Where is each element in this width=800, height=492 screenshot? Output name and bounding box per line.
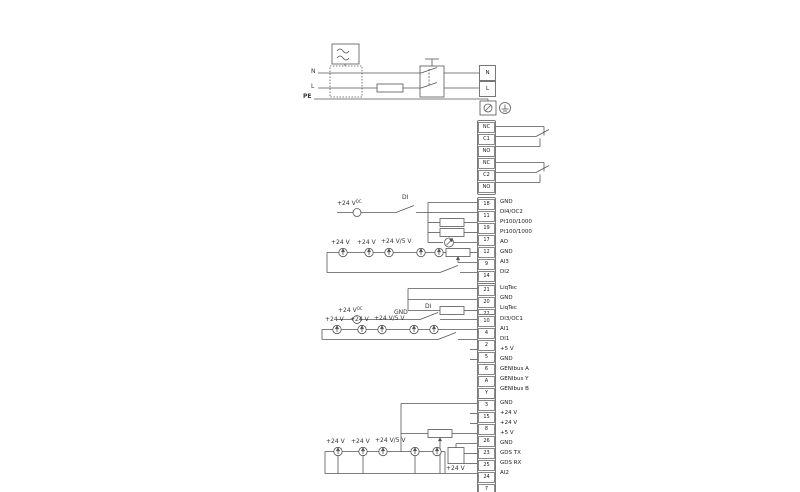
fuse-symbol	[377, 84, 403, 92]
label-supply-n: N	[311, 69, 316, 75]
terminal-id: NC	[483, 161, 490, 166]
isolator-switch	[420, 59, 444, 97]
terminal-id: 5	[485, 355, 488, 360]
terminal-label: GENIbus B	[500, 384, 570, 394]
label-supply-l: L	[311, 84, 314, 90]
terminal-box: 25	[478, 460, 495, 471]
label-24v5v-g: +24 V/5 V	[375, 438, 406, 444]
terminal-id: 25	[483, 463, 489, 468]
terminal-label: LiqTec	[500, 283, 570, 293]
terminal-box: 6	[478, 364, 495, 375]
terminal-box: 10	[478, 316, 495, 327]
label-24v-text: +24 V	[338, 307, 357, 314]
terminal-label: GENIbus A	[500, 364, 570, 374]
terminal-label: DI3/OC1	[500, 314, 570, 324]
terminal-box: 7	[478, 484, 495, 492]
terminal-id: 7	[485, 487, 488, 492]
terminal-id: Y	[485, 391, 488, 396]
label-supply-pe: PE	[303, 94, 312, 100]
terminal-label: LiqTec	[500, 303, 570, 313]
terminal-box: NC	[478, 158, 495, 169]
terminal-mains-n: N	[479, 65, 496, 81]
label-gds-24v: +24 V	[446, 466, 465, 472]
liqtec-circuit	[408, 289, 478, 315]
terminal-box: 11	[478, 211, 495, 222]
terminal-id: 20	[483, 300, 489, 305]
terminal-id: C1	[483, 137, 490, 142]
analog-output-meter	[428, 238, 478, 247]
terminal-group-3: 18111917129141	[477, 197, 496, 296]
label-di-1: DI	[402, 195, 408, 201]
terminal-id: 24	[483, 475, 489, 480]
terminal-group-6: 3158262325247	[477, 398, 496, 492]
terminal-box: 12	[478, 247, 495, 258]
terminal-labels-6: GND+24 V+24 V+5 VGNDGDS TXGDS RXAI2	[500, 398, 570, 478]
terminal-id: 21	[483, 288, 489, 293]
terminal-id: NO	[483, 149, 491, 154]
terminal-id: 10	[483, 319, 489, 324]
terminal-id: C2	[483, 173, 490, 178]
terminal-box: 23	[478, 448, 495, 459]
label-24v-c2: +24 V	[357, 240, 376, 246]
terminal-box: 18	[478, 199, 495, 210]
terminal-label: DI2	[500, 267, 570, 277]
terminal-id: NC	[483, 125, 490, 130]
terminal-mains-l: L	[479, 81, 496, 97]
terminal-label: +24 V	[500, 418, 570, 428]
label-24v-c1: +24 V	[331, 240, 350, 246]
terminal-box: 21	[478, 285, 495, 296]
label-24v-g2: +24 V	[351, 439, 370, 445]
terminal-box: 20	[478, 297, 495, 308]
terminal-box: 2	[478, 340, 495, 351]
terminal-id: 15	[483, 415, 489, 420]
terminal-box: 3	[478, 400, 495, 411]
terminal-box: 8	[478, 424, 495, 435]
terminal-label: Pt100/1000	[500, 227, 570, 237]
pt100-sensors	[428, 219, 478, 237]
terminal-label: AI3	[500, 257, 570, 267]
terminal-id: 12	[483, 250, 489, 255]
terminal-box: 9	[478, 259, 495, 270]
terminal-label: GND	[500, 197, 570, 207]
label-24v-text: +24 V	[337, 200, 356, 207]
label-di-2: DI	[425, 304, 431, 310]
terminal-box: NO	[478, 182, 495, 193]
terminal-label: Pt100/1000	[500, 217, 570, 227]
gds-sensor-box	[448, 444, 478, 464]
label-24v-oc-2: +24 VOC	[338, 306, 363, 314]
terminal-box: 14	[478, 271, 495, 282]
terminal-box: 24	[478, 472, 495, 483]
terminal-id: 9	[485, 262, 488, 267]
terminal-labels-4: LiqTecGNDLiqTec	[500, 283, 570, 313]
terminal-id: 26	[483, 439, 489, 444]
terminal-box: NC	[478, 122, 495, 133]
terminal-label: AI2	[500, 468, 570, 478]
terminal-label: DI4/OC2	[500, 207, 570, 217]
terminal-id: 18	[483, 202, 489, 207]
terminal-box: 15	[478, 412, 495, 423]
terminal-id: 3	[485, 403, 488, 408]
rcd-box	[330, 66, 362, 97]
wiring-diagram: N L PE +24 VOC DI +24 V +24 V +24 V/5 V …	[0, 0, 800, 492]
label-24v-g1: +24 V	[326, 439, 345, 445]
terminal-id: 6	[485, 367, 488, 372]
gnd-rail	[401, 404, 478, 452]
protective-earth-symbol	[500, 103, 511, 114]
terminal-label: GND	[500, 438, 570, 448]
relay1-load-wiring	[496, 127, 549, 147]
label-24v-e1: +24 V	[325, 317, 344, 323]
terminal-id: NO	[483, 185, 491, 190]
terminal-id: A	[485, 379, 488, 384]
terminal-id: 17	[483, 238, 489, 243]
terminal-labels-5: DI3/OC1AI1DI1+5 VGNDGENIbus AGENIbus YGE…	[500, 314, 570, 394]
label-24v-oc-1: +24 VOC	[337, 199, 362, 207]
terminal-box: 26	[478, 436, 495, 447]
terminal-label: GDS TX	[500, 448, 570, 458]
terminal-id: 23	[483, 451, 489, 456]
terminal-label: DI1	[500, 334, 570, 344]
ai1-sensor-row	[322, 325, 478, 359]
label-24v5v-c: +24 V/5 V	[381, 239, 412, 245]
label-oc-sup: OC	[357, 306, 363, 311]
terminal-label: AI1	[500, 324, 570, 334]
terminal-label: GND	[500, 354, 570, 364]
terminal-label: AO	[500, 237, 570, 247]
terminal-id: 8	[485, 427, 488, 432]
terminal-id: 14	[483, 274, 489, 279]
ai3-sensor-row	[327, 249, 478, 273]
terminal-box: C2	[478, 170, 495, 181]
terminal-label: GND	[500, 398, 570, 408]
terminal-box: C1	[478, 134, 495, 145]
terminal-box: 17	[478, 235, 495, 246]
terminal-box: A	[478, 376, 495, 387]
relay1-terminal-group: NCC1NO	[477, 120, 496, 159]
relay2-load-wiring	[496, 163, 549, 183]
terminal-label: +5 V	[500, 428, 570, 438]
relay2-terminal-group: NCC2NO	[477, 156, 496, 195]
terminal-box: 4	[478, 328, 495, 339]
label-24v5v-e: +24 V/5 V	[374, 316, 405, 322]
mains-sine-symbol	[332, 44, 359, 66]
terminal-label: GND	[500, 247, 570, 257]
terminal-label: GENIbus Y	[500, 374, 570, 384]
terminal-labels-3: GNDDI4/OC2Pt100/1000Pt100/1000AOGNDAI3DI…	[500, 197, 570, 277]
terminal-id: 2	[485, 343, 488, 348]
label-oc-sup: OC	[356, 199, 362, 204]
terminal-box: 5	[478, 352, 495, 363]
terminal-label: +5 V	[500, 344, 570, 354]
label-24v-e2: +24 V	[350, 317, 369, 323]
terminal-box: 19	[478, 223, 495, 234]
terminal-id: 4	[485, 331, 488, 336]
terminal-label: GND	[500, 293, 570, 303]
terminal-label: +24 V	[500, 408, 570, 418]
earth-clamp-symbol	[480, 101, 496, 115]
wiring-svg	[0, 0, 800, 492]
terminal-id: 19	[483, 226, 489, 231]
terminal-label: GDS RX	[500, 458, 570, 468]
terminal-id: 11	[483, 214, 489, 219]
